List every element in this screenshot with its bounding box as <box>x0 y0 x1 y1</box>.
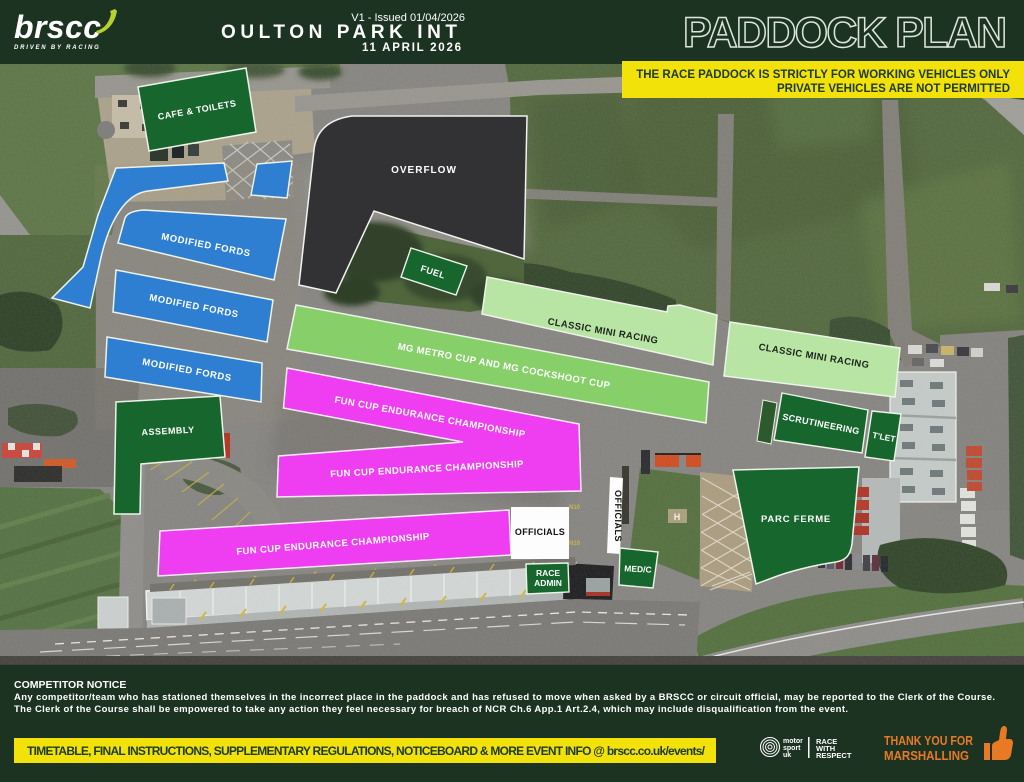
svg-text:THE RACE PADDOCK IS STRICTLY F: THE RACE PADDOCK IS STRICTLY FOR WORKING… <box>636 69 1010 81</box>
svg-text:PRIVATE VEHICLES ARE NOT PERMI: PRIVATE VEHICLES ARE NOT PERMITTED <box>777 83 1010 95</box>
svg-text:motor: motor <box>783 738 803 745</box>
svg-text:OFFICIALS: OFFICIALS <box>613 490 623 542</box>
svg-text:PARC FERME: PARC FERME <box>761 514 831 525</box>
svg-text:The Clerk of the Course shall: The Clerk of the Course shall be empower… <box>14 704 848 715</box>
svg-text:OVERFLOW: OVERFLOW <box>391 165 457 176</box>
svg-text:11 APRIL 2026: 11 APRIL 2026 <box>362 42 465 54</box>
svg-text:COMPETITOR NOTICE: COMPETITOR NOTICE <box>14 679 126 691</box>
svg-text:MED/C: MED/C <box>624 563 652 574</box>
svg-text:THANK YOU FOR: THANK YOU FOR <box>884 733 973 748</box>
svg-text:RESPECT: RESPECT <box>816 751 852 760</box>
svg-text:OFFICIALS: OFFICIALS <box>515 527 565 537</box>
svg-text:Any competitor/team who has st: Any competitor/team who has stationed th… <box>14 692 995 703</box>
svg-text:MARSHALLING: MARSHALLING <box>884 748 969 763</box>
svg-text:RACE: RACE <box>536 568 560 578</box>
svg-text:brscc: brscc <box>14 9 102 45</box>
svg-text:ADMIN: ADMIN <box>534 578 562 588</box>
svg-text:sport: sport <box>783 745 801 752</box>
svg-text:PADDOCK PLAN: PADDOCK PLAN <box>683 9 1010 57</box>
svg-text:DRIVEN BY RACING: DRIVEN BY RACING <box>14 45 102 51</box>
svg-text:TIMETABLE, FINAL INSTRUCTIONS,: TIMETABLE, FINAL INSTRUCTIONS, SUPPLEMEN… <box>27 744 706 758</box>
svg-text:uk: uk <box>783 752 791 759</box>
svg-text:OULTON PARK INT: OULTON PARK INT <box>221 22 465 43</box>
